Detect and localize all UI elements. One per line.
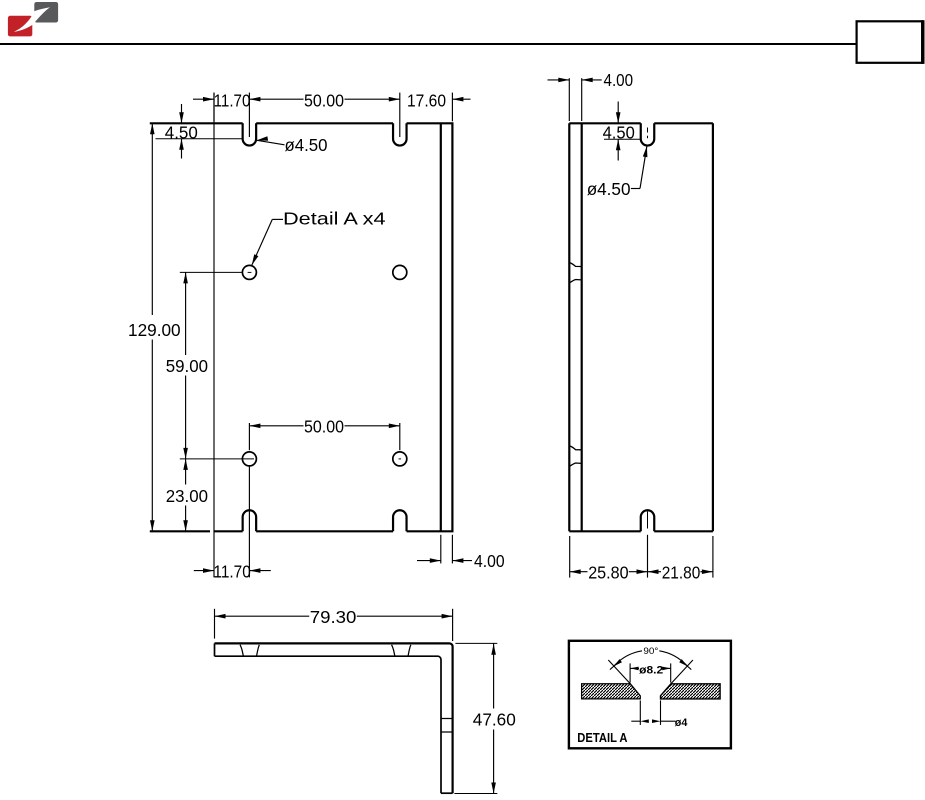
svg-text:11.70: 11.70 — [214, 90, 251, 110]
svg-text:17.60: 17.60 — [407, 90, 446, 110]
svg-text:4.00: 4.00 — [474, 551, 505, 571]
svg-text:90°: 90° — [643, 646, 658, 656]
svg-text:Detail A x4: Detail A x4 — [283, 209, 386, 229]
svg-text:23.00: 23.00 — [166, 486, 208, 506]
svg-text:ø4.50: ø4.50 — [587, 179, 631, 199]
svg-text:50.00: 50.00 — [304, 90, 344, 110]
svg-text:21.80: 21.80 — [662, 563, 701, 583]
svg-text:79.30: 79.30 — [310, 607, 357, 627]
svg-text:ø4.50: ø4.50 — [285, 135, 328, 155]
svg-text:DETAIL A: DETAIL A — [577, 730, 628, 745]
svg-text:129.00: 129.00 — [128, 320, 181, 340]
svg-text:4.00: 4.00 — [604, 70, 634, 90]
svg-text:47.60: 47.60 — [473, 709, 516, 729]
svg-text:59.00: 59.00 — [166, 356, 208, 376]
svg-text:ø8.2: ø8.2 — [639, 664, 663, 676]
svg-text:50.00: 50.00 — [304, 416, 344, 436]
svg-text:ø4: ø4 — [675, 717, 688, 729]
svg-text:11.70: 11.70 — [213, 561, 251, 581]
svg-text:25.80: 25.80 — [588, 563, 629, 583]
svg-text:4.50: 4.50 — [165, 122, 198, 142]
